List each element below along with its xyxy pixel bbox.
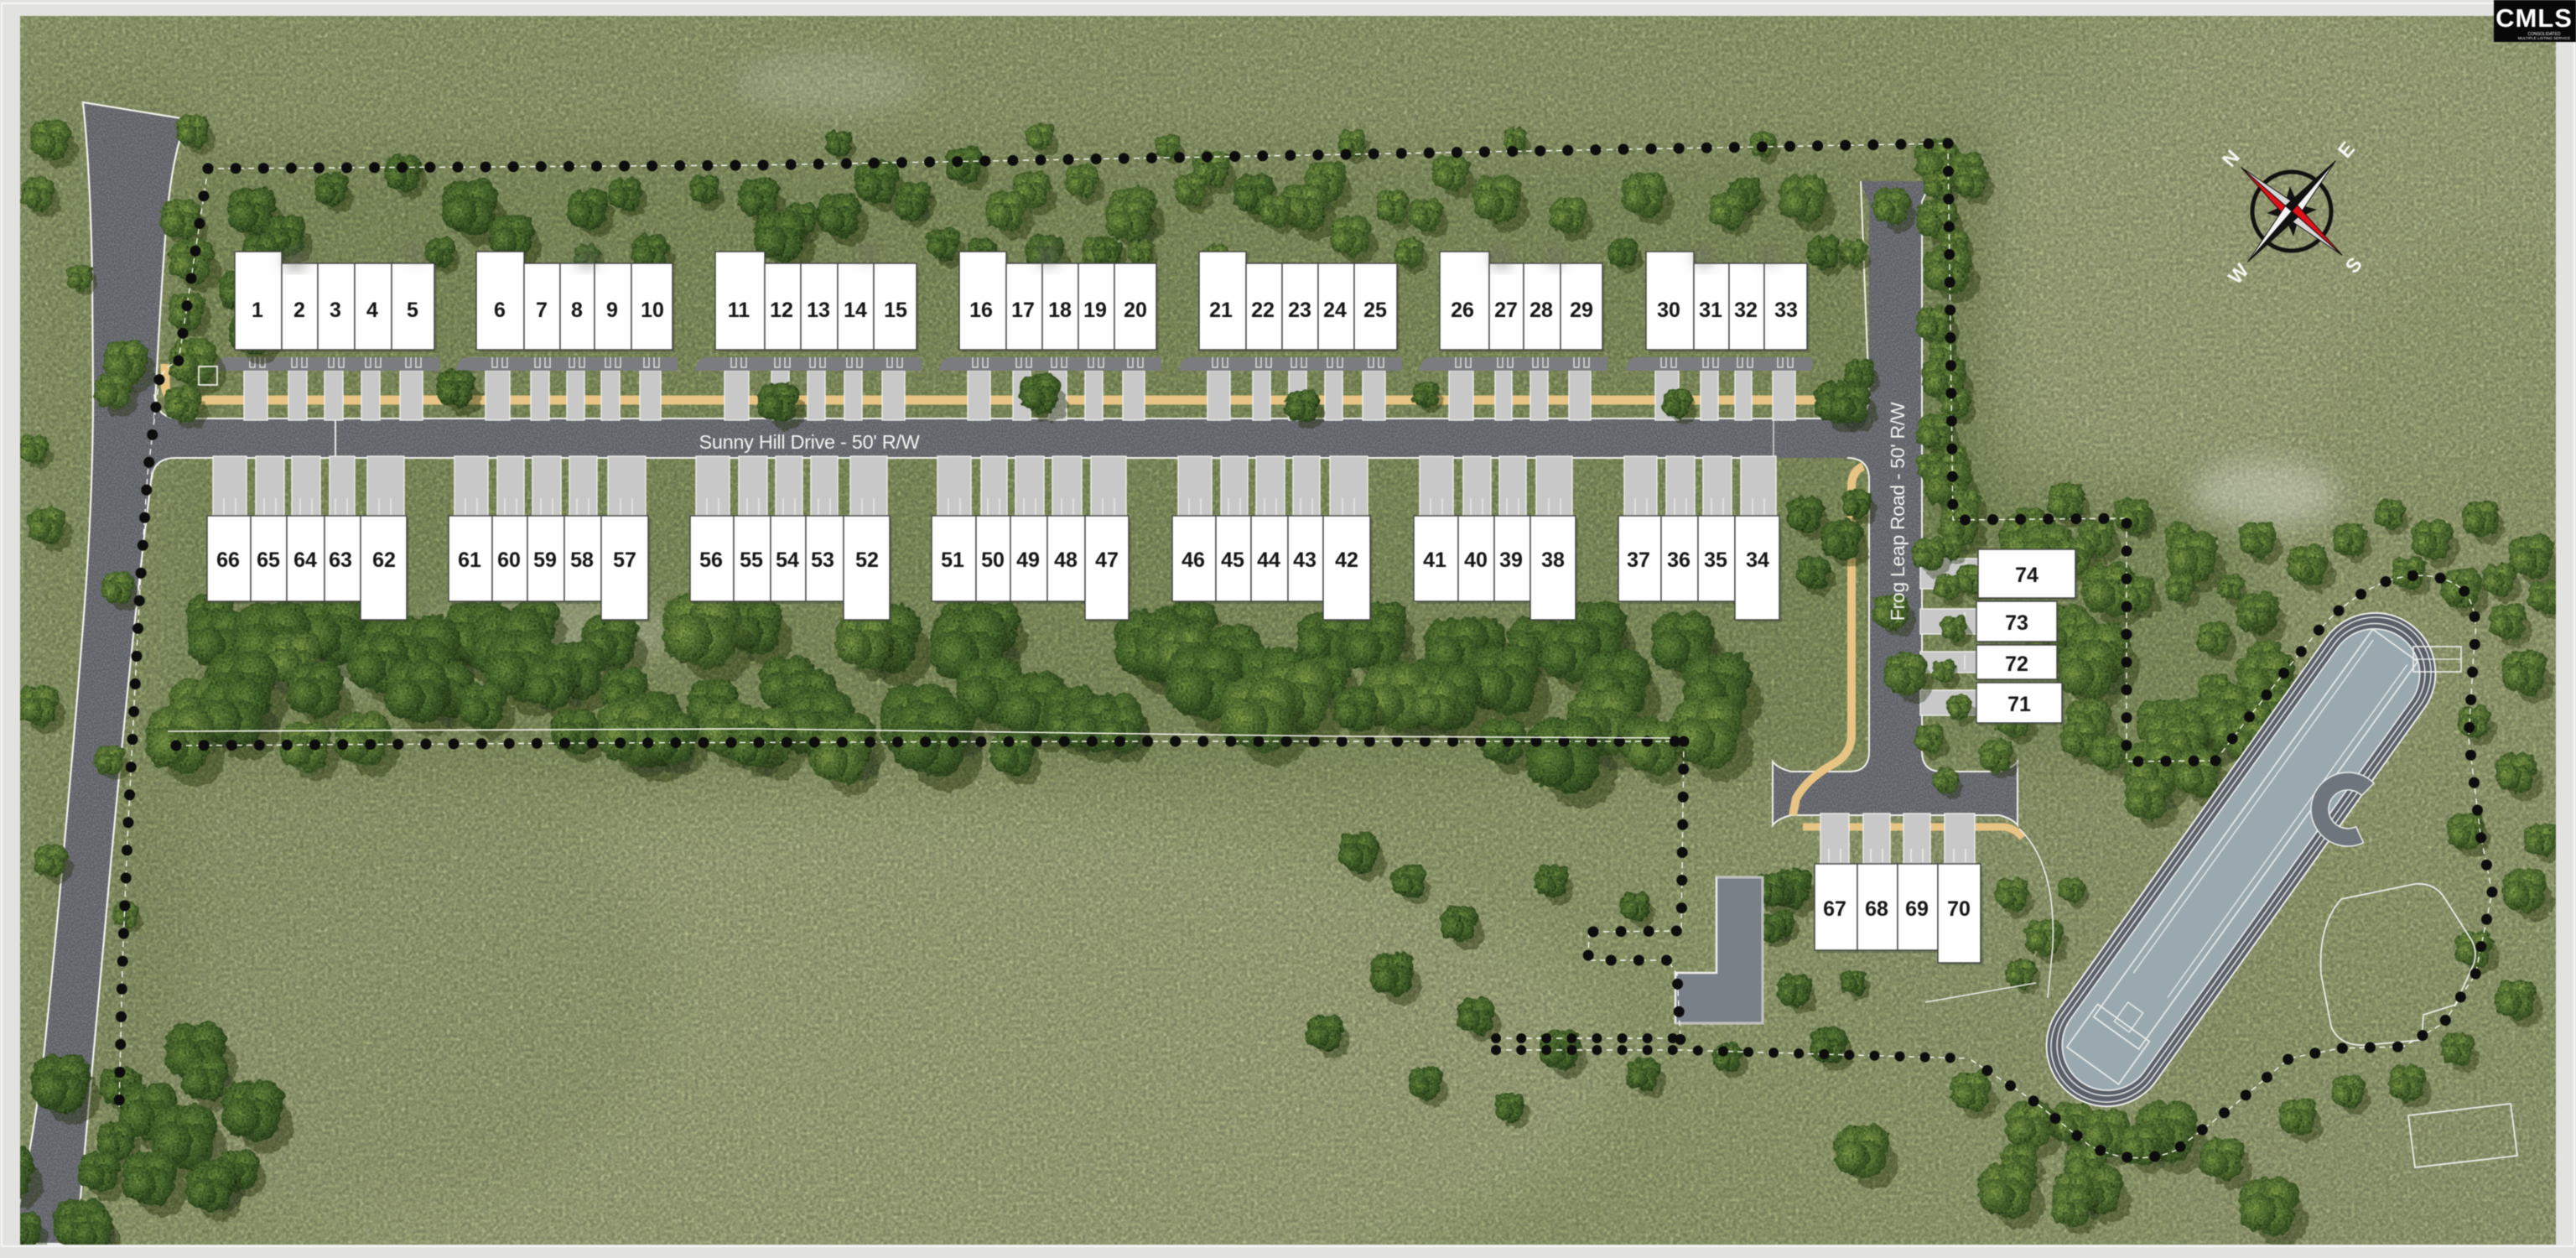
svg-text:10: 10 [641,299,664,322]
svg-text:2: 2 [293,299,305,322]
svg-text:23: 23 [1288,299,1311,322]
svg-text:51: 51 [941,548,964,572]
svg-text:3: 3 [330,299,341,322]
svg-text:35: 35 [1704,548,1727,572]
svg-text:15: 15 [884,299,907,322]
svg-text:60: 60 [497,548,521,572]
svg-text:65: 65 [257,548,280,572]
svg-text:7: 7 [536,299,548,322]
svg-text:22: 22 [1251,299,1275,322]
svg-text:38: 38 [1541,548,1565,572]
svg-text:8: 8 [571,299,583,322]
svg-text:73: 73 [2005,611,2028,635]
svg-text:39: 39 [1499,548,1523,572]
svg-text:48: 48 [1054,548,1078,572]
svg-text:21: 21 [1209,299,1233,322]
svg-text:70: 70 [1947,897,1971,921]
svg-text:72: 72 [2005,652,2028,676]
svg-text:19: 19 [1083,299,1107,322]
svg-text:30: 30 [1657,299,1680,322]
svg-text:28: 28 [1529,299,1553,322]
svg-text:12: 12 [770,299,793,322]
svg-text:50: 50 [981,548,1005,572]
svg-text:Sunny Hill Drive - 50' R/W: Sunny Hill Drive - 50' R/W [699,431,920,453]
svg-text:32: 32 [1734,299,1758,322]
svg-text:49: 49 [1016,548,1040,572]
svg-text:37: 37 [1627,548,1650,572]
svg-text:59: 59 [533,548,557,572]
svg-text:67: 67 [1823,897,1846,921]
svg-text:11: 11 [728,299,750,322]
svg-text:66: 66 [216,548,240,572]
svg-text:55: 55 [740,548,763,572]
svg-text:56: 56 [699,548,723,572]
svg-text:74: 74 [2015,564,2038,587]
svg-text:MULTIPLE LISTING SERVICE: MULTIPLE LISTING SERVICE [2518,36,2571,40]
svg-text:20: 20 [1124,299,1147,322]
svg-text:1: 1 [252,299,263,322]
svg-text:17: 17 [1011,299,1035,322]
svg-text:58: 58 [570,548,594,572]
svg-text:34: 34 [1746,548,1769,572]
svg-text:40: 40 [1464,548,1488,572]
svg-text:57: 57 [613,548,636,572]
svg-text:4: 4 [366,299,378,322]
svg-text:42: 42 [1335,548,1358,572]
svg-text:6: 6 [494,299,506,322]
svg-text:36: 36 [1667,548,1690,572]
svg-text:9: 9 [606,299,618,322]
svg-text:29: 29 [1570,299,1593,322]
svg-text:45: 45 [1221,548,1244,572]
svg-text:27: 27 [1494,299,1518,322]
svg-text:13: 13 [807,299,830,322]
svg-text:53: 53 [811,548,834,572]
svg-text:31: 31 [1699,299,1722,322]
svg-text:41: 41 [1423,548,1446,572]
svg-text:44: 44 [1257,548,1280,572]
svg-text:62: 62 [372,548,396,572]
svg-text:18: 18 [1048,299,1072,322]
svg-text:63: 63 [329,548,352,572]
svg-text:71: 71 [2007,693,2031,716]
svg-text:14: 14 [844,299,867,322]
svg-text:52: 52 [855,548,879,572]
svg-text:24: 24 [1323,299,1347,322]
svg-text:Frog Leap Road - 50' R/W: Frog Leap Road - 50' R/W [1887,402,1909,621]
svg-text:54: 54 [776,548,799,572]
svg-text:69: 69 [1905,897,1929,921]
svg-text:16: 16 [969,299,993,322]
svg-text:26: 26 [1451,299,1474,322]
svg-text:33: 33 [1774,299,1798,322]
svg-text:47: 47 [1095,548,1119,572]
svg-text:46: 46 [1182,548,1205,572]
svg-text:5: 5 [407,299,418,322]
svg-text:25: 25 [1363,299,1387,322]
svg-text:68: 68 [1865,897,1888,921]
svg-text:CMLS: CMLS [2495,3,2573,33]
svg-text:61: 61 [458,548,481,572]
svg-text:64: 64 [293,548,317,572]
svg-text:43: 43 [1293,548,1317,572]
